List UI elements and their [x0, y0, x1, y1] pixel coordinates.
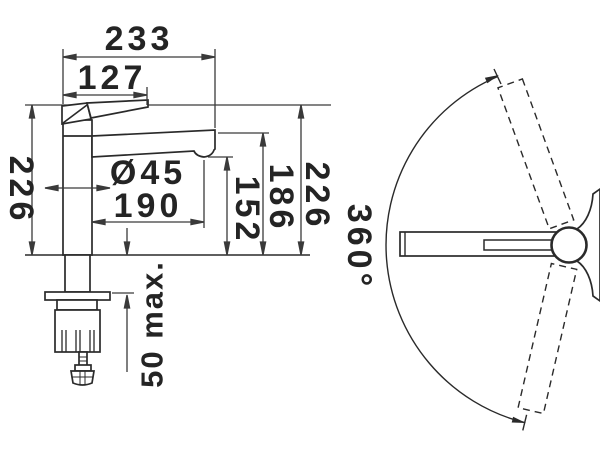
swivel-position-upper [498, 79, 574, 229]
base-flange [45, 292, 110, 300]
dim-label-height-left: 226 [4, 156, 38, 225]
dim-label-body-diameter: Ø45 [110, 156, 186, 190]
dim-label-lever-reach: 127 [78, 61, 147, 95]
faucet-shank [65, 255, 90, 292]
faucet-spout [92, 130, 215, 157]
faucet-lever-arm [87, 100, 148, 118]
technical-drawing-canvas: 233 127 226 Ø45 190 152 186 226 50 max. … [0, 0, 600, 450]
swivel-position-lower [518, 264, 577, 414]
dim-label-spout-reach: 190 [114, 189, 183, 223]
mount-collar [57, 300, 97, 310]
dim-label-swivel-angle: 360° [342, 204, 376, 290]
dim-label-max-counter-thickness: 50 max. [137, 260, 168, 388]
dim-label-overall-width: 233 [105, 22, 174, 56]
fixing-screw [71, 371, 94, 385]
body-plan-circle [552, 228, 587, 263]
dim-label-outlet-height: 152 [230, 176, 264, 245]
threaded-stud [79, 352, 87, 366]
dim-label-overall-height-right: 226 [300, 162, 334, 231]
stud-collar [75, 365, 91, 371]
dim-label-spout-top-height: 186 [264, 164, 298, 233]
top-view [386, 69, 600, 430]
